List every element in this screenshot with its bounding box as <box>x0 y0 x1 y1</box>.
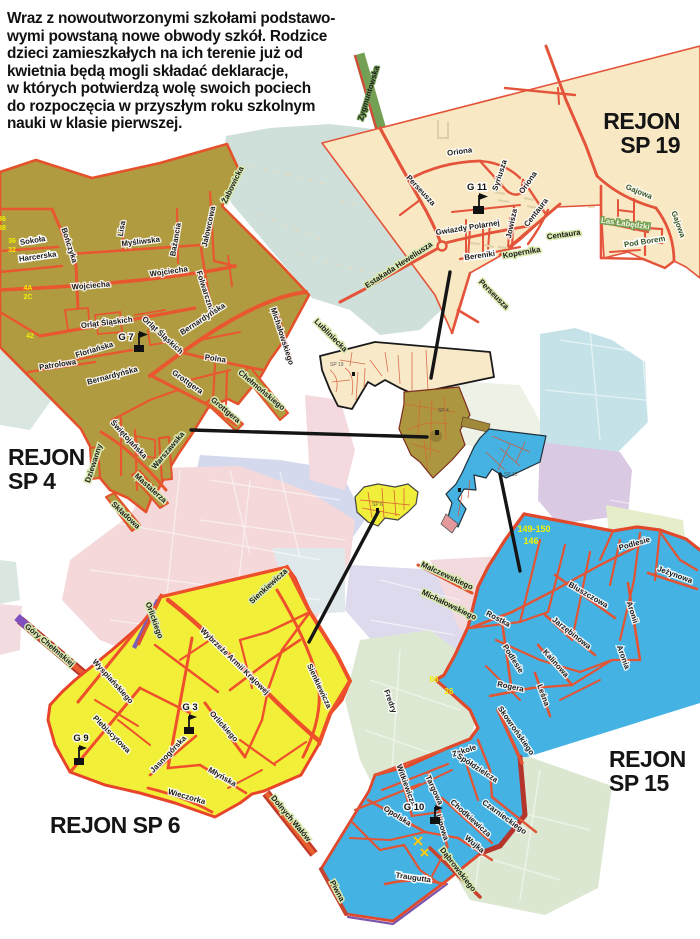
svg-text:SP 4: SP 4 <box>438 408 449 414</box>
svg-text:Perseusza: Perseusza <box>477 277 511 311</box>
svg-text:4A: 4A <box>24 285 33 292</box>
svg-text:G 10: G 10 <box>404 802 425 813</box>
svg-text:Centaura: Centaura <box>546 228 581 242</box>
svg-text:Lubliniecka: Lubliniecka <box>312 317 349 354</box>
svg-text:G 3: G 3 <box>182 702 197 713</box>
svg-text:Dolnych Wałów: Dolnych Wałów <box>269 794 313 844</box>
svg-text:SP 19: SP 19 <box>330 362 344 368</box>
svg-text:SP 15: SP 15 <box>504 472 518 478</box>
svg-text:149-150: 149-150 <box>517 524 550 534</box>
svg-text:38: 38 <box>0 225 6 232</box>
svg-text:Góry Chełmskiej: Góry Chełmskiej <box>23 622 76 668</box>
svg-text:2C: 2C <box>24 294 33 301</box>
svg-text:26: 26 <box>445 687 454 696</box>
svg-text:SP 6: SP 6 <box>372 502 383 508</box>
svg-text:36: 36 <box>8 238 16 245</box>
svg-text:146: 146 <box>523 536 538 546</box>
svg-text:G 11: G 11 <box>467 182 488 193</box>
svg-text:36: 36 <box>0 216 6 223</box>
svg-text:G 7: G 7 <box>118 332 133 343</box>
svg-text:G 9: G 9 <box>73 733 88 744</box>
svg-text:42: 42 <box>26 333 34 340</box>
svg-text:32: 32 <box>8 247 16 254</box>
svg-text:66: 66 <box>430 675 439 684</box>
